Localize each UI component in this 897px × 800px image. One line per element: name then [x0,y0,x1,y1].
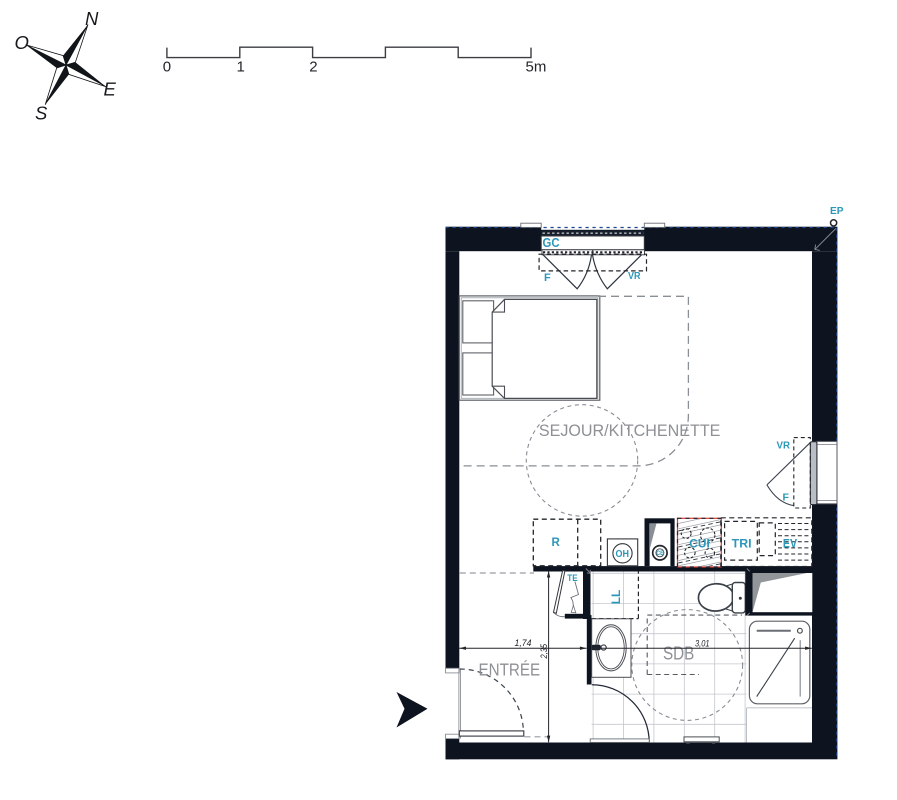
svg-text:SDB: SDB [663,644,694,664]
svg-text:CE: CE [656,551,664,557]
svg-text:O: O [15,32,29,53]
svg-text:2: 2 [309,59,317,76]
svg-text:R: R [552,537,561,549]
svg-text:SEJOUR/KITCHENETTE: SEJOUR/KITCHENETTE [539,421,721,440]
svg-text:ENTRÉE: ENTRÉE [479,660,541,680]
svg-text:LL: LL [609,590,623,605]
svg-text:CUI: CUI [689,538,710,550]
svg-text:E: E [104,79,117,100]
svg-text:F: F [544,272,551,284]
svg-text:0: 0 [163,59,171,76]
svg-text:VR: VR [777,440,791,452]
svg-text:GC: GC [543,236,560,250]
svg-text:3,01: 3,01 [695,639,710,650]
svg-text:OH: OH [616,548,630,560]
svg-text:1: 1 [237,59,245,76]
svg-text:TE: TE [567,573,577,584]
svg-text:2,35: 2,35 [539,643,550,659]
svg-text:N: N [85,8,99,29]
svg-text:1,74: 1,74 [515,638,532,649]
svg-text:F: F [783,492,790,504]
svg-text:TRI: TRI [732,538,752,550]
svg-text:VR: VR [628,270,641,282]
svg-text:5m: 5m [526,59,547,76]
svg-text:EP: EP [830,205,844,217]
svg-text:EV: EV [783,538,797,550]
svg-text:S: S [35,102,48,123]
